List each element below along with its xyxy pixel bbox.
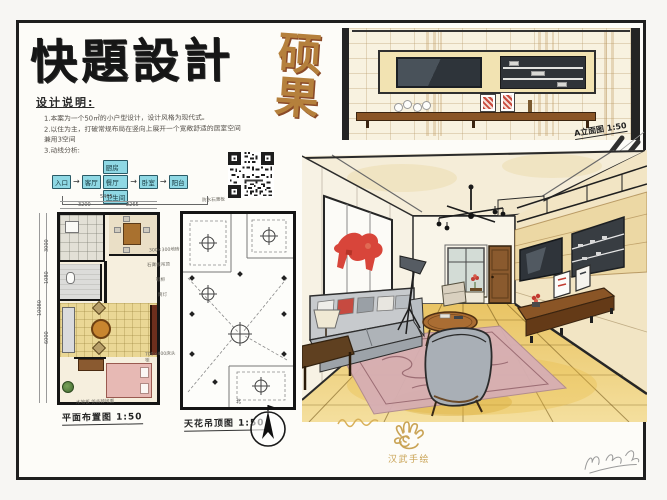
decor-spheres xyxy=(403,100,412,109)
plan-wall xyxy=(104,261,107,303)
flow-node-dining: 餐厅 xyxy=(103,175,129,189)
bench-frame xyxy=(576,265,590,291)
title-stamp: 硕果 xyxy=(266,29,319,162)
dimension-line xyxy=(60,208,157,209)
floor-plan-label: 平面布置图 1:50 xyxy=(62,409,143,425)
plan-wardrobe xyxy=(78,359,104,371)
plan-pillow xyxy=(140,383,149,394)
plan-chair xyxy=(123,216,130,222)
picture-frame xyxy=(480,94,496,112)
dimension-line xyxy=(60,201,157,202)
plan-dining-table xyxy=(123,223,141,245)
dimension-value: 6000 xyxy=(44,331,50,344)
accent-chair xyxy=(442,282,466,306)
plan-sofa xyxy=(62,307,75,353)
shelf-item xyxy=(557,82,567,87)
shelf-item xyxy=(509,61,519,66)
page-title: 快題設計 xyxy=(30,21,281,93)
flow-arrow: → xyxy=(160,178,167,186)
plan-bed xyxy=(106,363,152,398)
curtain-rod xyxy=(352,30,630,32)
wall-section xyxy=(342,28,349,140)
dimension-value: 3000 xyxy=(44,239,50,252)
decor-spheres xyxy=(422,101,431,110)
ceiling-plan xyxy=(180,211,296,410)
console-leg xyxy=(366,121,369,128)
plan-chair xyxy=(114,227,121,233)
plan-kitchen xyxy=(60,215,105,262)
decor-spheres xyxy=(394,103,403,112)
dimension-value: 5465 xyxy=(100,194,113,200)
logo-text: 汉武手绘 xyxy=(374,452,444,465)
plan-annotation: 700×400床头柜 xyxy=(145,350,179,363)
studio-logo: 汉武手绘 xyxy=(374,420,444,465)
elevation-shelf-unit xyxy=(500,56,586,89)
flow-node-living: 客厅 xyxy=(82,175,101,189)
presentation-board: 快題設計 硕果 设计说明: 1.本案为一个50㎡的小户型设计，设计风格为现代式。… xyxy=(0,0,667,500)
dimension-value: 10080 xyxy=(37,300,43,316)
ceiling-annotation: 石膏板吊顶 xyxy=(147,262,170,269)
north-arrow-icon xyxy=(246,402,290,450)
shelf-item xyxy=(531,71,545,76)
dimension-value: 1080 xyxy=(44,271,50,284)
dimension-value: 2265 xyxy=(126,202,139,208)
plan-annotation: 鞋柜 xyxy=(156,277,165,283)
plan-chair xyxy=(143,227,150,233)
notes-heading: 设计说明: xyxy=(36,94,271,110)
elevation-tv xyxy=(396,57,482,88)
plan-pillow xyxy=(140,367,149,378)
shelf xyxy=(503,67,583,69)
floor-plan xyxy=(57,212,160,405)
elevation-media-panel xyxy=(378,50,596,94)
door xyxy=(489,246,511,303)
hand-logo-icon xyxy=(391,420,427,454)
curtain xyxy=(604,32,616,136)
ceiling-annotation: 筒灯 xyxy=(158,292,167,298)
elevation-drawing xyxy=(342,28,640,140)
north-label: 北 xyxy=(236,398,241,405)
decor-bottle xyxy=(528,100,532,112)
plan-tv-cabinet xyxy=(150,305,157,355)
plan-plant xyxy=(62,381,74,393)
flow-node-kitchen: 厨房 xyxy=(103,160,129,174)
ceiling-plan-drawing xyxy=(183,214,293,407)
ceiling-annotation: 防水石膏板 xyxy=(202,197,225,204)
elevation-console xyxy=(356,112,596,121)
plan-counter xyxy=(65,221,79,233)
perspective-rendering xyxy=(302,150,647,422)
design-notes: 设计说明: 1.本案为一个50㎡的小户型设计，设计风格为现代式。 2.以住为主，… xyxy=(36,94,271,155)
shelf xyxy=(503,78,583,80)
wall-section xyxy=(631,28,640,140)
picture-frame xyxy=(500,92,515,112)
plan-coffee-table xyxy=(91,319,111,339)
plan-toilet xyxy=(66,272,75,284)
flow-node-bedroom: 卧室 xyxy=(139,175,158,189)
plan-chair xyxy=(123,247,130,253)
dimension-value: 3200 xyxy=(78,202,91,208)
plan-annotation: 300×300地砖 xyxy=(149,246,181,253)
console-leg xyxy=(472,121,475,128)
plan-bathroom xyxy=(60,264,102,301)
flow-arrow: → xyxy=(130,178,137,186)
flow-arrow: → xyxy=(73,178,80,186)
flow-node-balcony: 阳台 xyxy=(169,175,188,189)
qr-code xyxy=(228,152,274,198)
flow-node-entry: 入口 xyxy=(52,175,71,189)
decor-spheres xyxy=(413,103,422,112)
